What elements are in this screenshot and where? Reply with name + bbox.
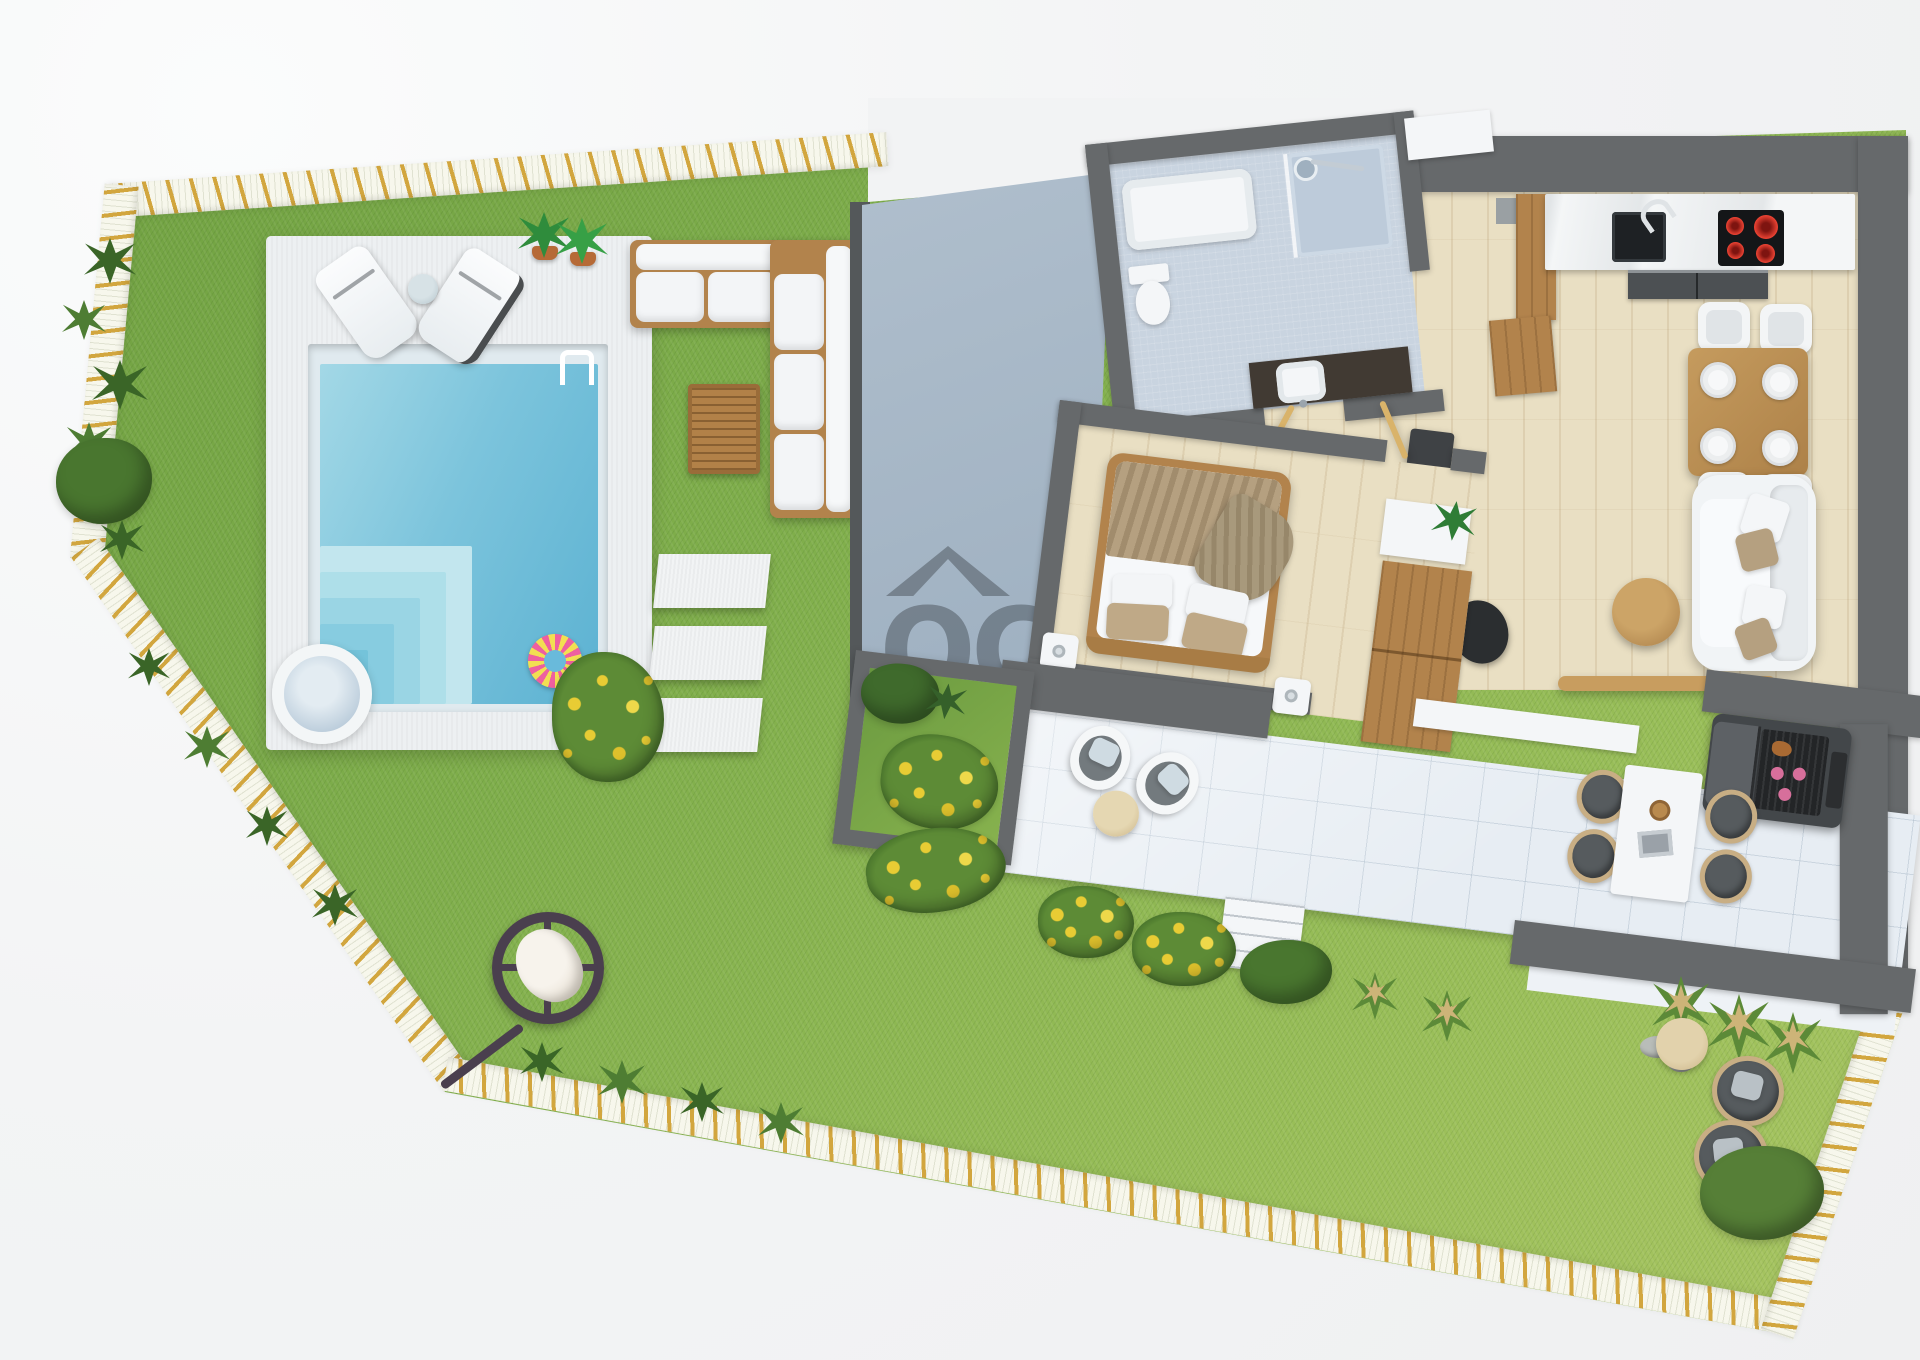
garden-side-table — [1656, 1018, 1708, 1070]
climbing-plant — [858, 659, 943, 728]
place-setting — [1762, 364, 1798, 400]
living-coffee-table — [1612, 578, 1680, 646]
bbq-food — [1771, 740, 1793, 757]
bbq-food — [1770, 766, 1784, 780]
outdoor-coffee-table — [688, 384, 760, 474]
dining-table — [1688, 348, 1808, 476]
hob-burner — [1754, 215, 1778, 239]
induction-hob — [1718, 210, 1784, 266]
table-tray — [1637, 829, 1673, 858]
kitchen-appliances — [1628, 270, 1768, 299]
egg-chair-cushion — [504, 918, 594, 1014]
chair-pillow — [1730, 1069, 1765, 1101]
dining-chair — [1760, 304, 1812, 354]
bathroom-block — [1085, 111, 1445, 446]
bbq-grate — [1752, 729, 1829, 817]
flowering-shrub — [552, 652, 664, 782]
bbq-food — [1778, 787, 1792, 801]
pool-side-table — [408, 274, 438, 304]
flowering-shrub — [875, 728, 1004, 836]
floor-plan-render: OC N M — [0, 0, 1920, 1360]
sofa-seat-cushion — [708, 272, 776, 322]
pool-ladder — [560, 350, 594, 385]
place-setting — [1700, 428, 1736, 464]
flowering-shrub — [1038, 886, 1134, 958]
outdoor-dining-table — [1610, 764, 1703, 903]
sofa-seat-cushion — [774, 274, 824, 350]
sofa-seat-cushion — [774, 434, 824, 510]
entrance-landing — [1404, 110, 1494, 161]
kitchen-counter — [1545, 194, 1855, 270]
hot-tub — [272, 644, 372, 744]
basin-faucet — [1299, 399, 1308, 408]
bathtub — [1121, 168, 1258, 251]
kitchen-lower-cabinet — [1489, 315, 1557, 396]
terrace-sill — [1413, 698, 1640, 753]
hanging-egg-chair — [492, 912, 604, 1024]
bbq-food — [1792, 767, 1806, 781]
stepping-stone — [653, 554, 771, 608]
flowering-shrub — [1132, 912, 1236, 986]
bedroom-wall-top — [1450, 448, 1486, 474]
sofa-back-cushion — [826, 246, 852, 512]
living-sofa — [1692, 475, 1816, 671]
appliance-divider — [1696, 273, 1698, 299]
outdoor-sofa-vertical — [770, 240, 858, 518]
dining-chair — [1698, 302, 1750, 352]
washbasin — [1275, 359, 1327, 404]
hob-burner — [1727, 242, 1744, 259]
wardrobe-divider — [1372, 648, 1462, 662]
place-setting — [1762, 430, 1798, 466]
table-cup — [1652, 802, 1669, 819]
sofa-seat-cushion — [636, 272, 704, 322]
place-setting — [1700, 362, 1736, 398]
hob-burner — [1756, 244, 1775, 263]
hob-burner — [1726, 217, 1744, 235]
stepping-stone — [649, 626, 767, 680]
sofa-seat-cushion — [774, 354, 824, 430]
